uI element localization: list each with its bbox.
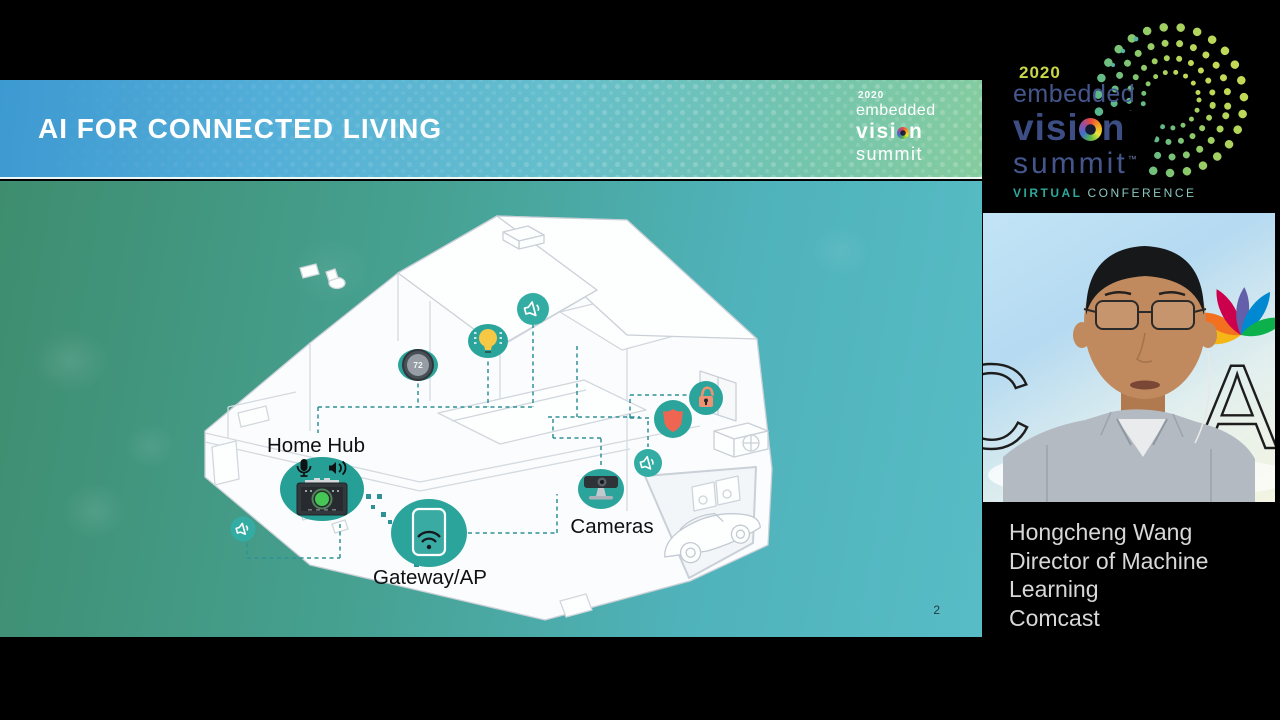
logo-embedded: embedded: [1013, 82, 1197, 107]
logo-vision: visin: [1013, 109, 1197, 146]
speaker-company: Comcast: [1009, 604, 1261, 633]
thermostat-value: 72: [413, 360, 423, 370]
speaker-name: Hongcheng Wang: [1009, 518, 1261, 547]
logo-year: 2020: [858, 91, 936, 101]
speaker-role: Director of Machine Learning: [1009, 547, 1261, 604]
logo-summit: summit: [856, 145, 936, 163]
rainbow-o-icon: [897, 127, 909, 139]
logo-summit: summit™: [1013, 149, 1197, 179]
security-shield-icon: [654, 400, 692, 438]
slide-body: 72: [0, 181, 982, 637]
presenter-scene: C AC: [983, 213, 1275, 502]
gateway-icon: [391, 499, 467, 567]
logo-embedded: embedded: [856, 103, 936, 119]
light-bulb-icon: [468, 324, 508, 358]
logo-conference-line: VIRTUALCONFERENCE: [1013, 187, 1197, 199]
presentation-slide: AI FOR CONNECTED LIVING 2020 embedded vi…: [0, 80, 982, 637]
speaker-icon: [634, 449, 662, 477]
door-lock-icon: [689, 381, 723, 415]
camera-icon: [578, 469, 624, 509]
slide-title-bar: AI FOR CONNECTED LIVING 2020 embedded vi…: [0, 80, 982, 179]
summit-logo-text: 2020 embedded visin summit™ VIRTUALCONFE…: [1013, 64, 1197, 199]
home-hub-icon: [280, 457, 364, 521]
page-number: 2: [933, 603, 940, 617]
slide-title: AI FOR CONNECTED LIVING: [38, 113, 442, 145]
logo-year: 2020: [1019, 64, 1197, 81]
summit-logo-large: 2020 embedded visin summit™ VIRTUALCONFE…: [983, 0, 1280, 212]
speaker-icon: [231, 517, 256, 542]
summit-logo-small: 2020 embedded visin summit: [856, 91, 936, 163]
webinar-frame: AI FOR CONNECTED LIVING 2020 embedded vi…: [0, 0, 1280, 720]
smart-home-diagram: 72: [0, 181, 982, 639]
presenter-video: C AC: [983, 213, 1275, 502]
cameras-label: Cameras: [570, 515, 653, 538]
thermostat-icon: 72: [398, 349, 438, 381]
gateway-label: Gateway/AP: [373, 566, 487, 589]
speaker-info: Hongcheng Wang Director of Machine Learn…: [1009, 518, 1261, 632]
home-hub-label: Home Hub: [267, 434, 365, 457]
speaker-icon: [517, 293, 549, 325]
logo-vision: visin: [856, 121, 936, 142]
rainbow-o-icon: [1079, 118, 1102, 141]
